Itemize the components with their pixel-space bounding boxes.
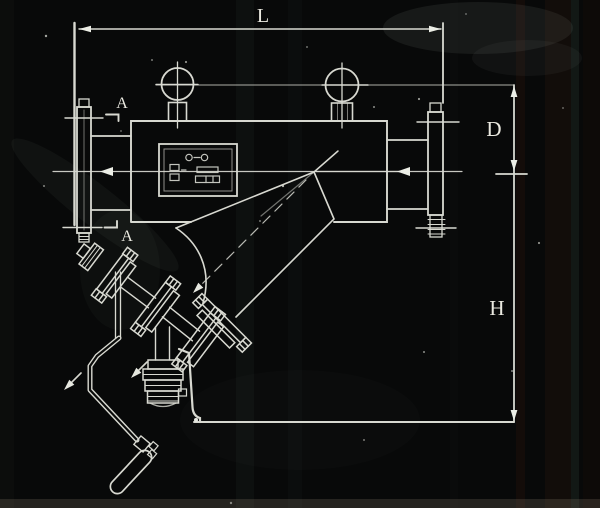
label-L: L <box>257 5 269 27</box>
label-H: H <box>489 296 504 320</box>
strainer-drawing: L D H A A <box>0 0 600 508</box>
blueprint-photo: L D H A A <box>0 0 600 508</box>
label-A-bottom: A <box>121 228 133 245</box>
label-D: D <box>486 117 501 141</box>
label-A-top: A <box>116 95 128 112</box>
